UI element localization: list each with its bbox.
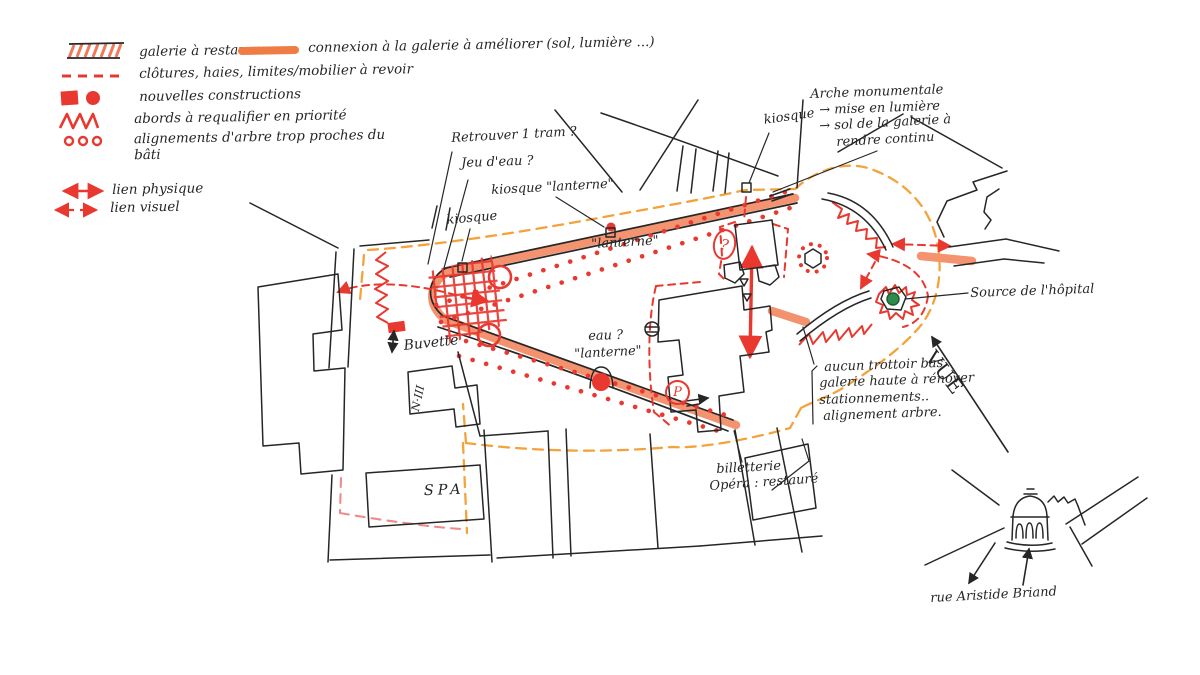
source-green-dot [887,293,899,305]
legend-label-lien-physique: lien physique [112,180,203,198]
legend-swatch-alignements-icon [60,132,112,150]
legend-swatch-abords-icon [56,110,114,132]
legend-swatch-constructions-icon [56,86,116,110]
legend-swatch-clotures-icon [58,70,128,82]
streets-and-buildings [250,100,1059,562]
label-spa: SPA [400,482,488,500]
street-perspective-sketch [925,470,1147,566]
legend-label-constructions: nouvelles constructions [139,86,301,105]
legend-swatch-lien-visuel-icon [48,201,106,219]
legend-label-alignements: alignements d'arbre trop proches du bâti [134,128,393,164]
legend-label-lien-visuel: lien visuel [110,199,180,216]
sketch-plan-canvas: galerie à restaurer connexion à la galer… [0,0,1200,675]
legend-swatch-galerie-icon [64,40,130,64]
parking-badge: P [665,380,690,405]
legend-swatch-lien-physique-icon [56,182,112,200]
label-jeu-eau: Jeu d'eau ? [461,154,534,170]
legend-swatch-connexion-icon [237,42,301,60]
label-eau: eau ? [588,329,623,344]
